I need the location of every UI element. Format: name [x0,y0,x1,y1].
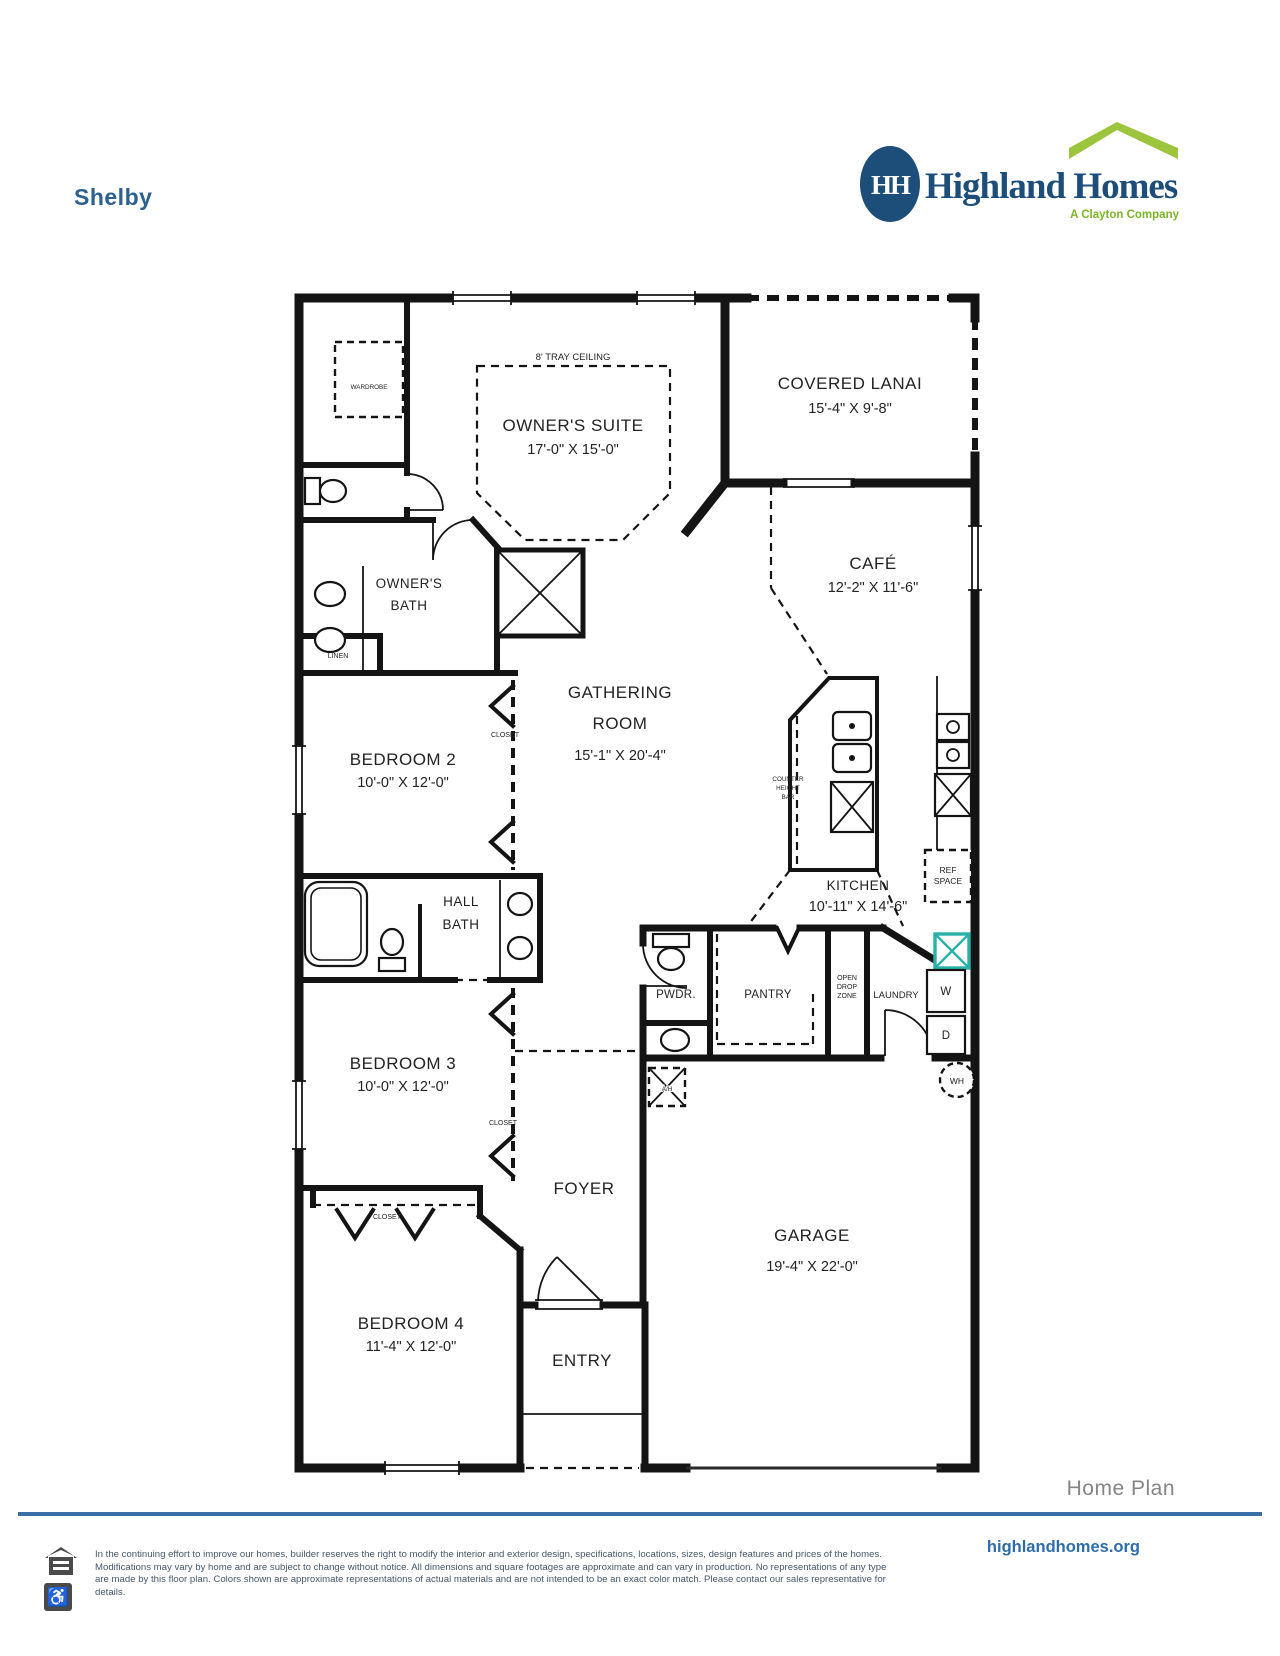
garage-label: GARAGE [774,1226,850,1245]
wardrobe-outline [335,342,403,417]
window [968,526,982,590]
brand-tagline: A Clayton Company [1070,209,1179,221]
foyer-label: FOYER [553,1179,614,1198]
bedroom4-label: BEDROOM 4 [358,1314,465,1333]
window [453,291,511,305]
air-handler-label: A/H [662,1086,673,1093]
drop-zone-label: OPEN [837,975,857,982]
floor-plan: 8' TRAY CEILING OWNER'S SUITE 17'-0" X 1… [285,288,995,1483]
bathtub [305,882,367,966]
bedroom2-label: BEDROOM 2 [350,750,457,769]
brand-roof-icon [1069,122,1178,159]
brand-name: Highland Homes [925,166,1178,207]
owners-bath-label: OWNER'S [376,576,443,591]
brand-monogram: HH [860,146,920,222]
disclaimer-text: In the continuing effort to improve our … [95,1549,913,1599]
entry-label: ENTRY [552,1351,612,1370]
page-title: Shelby [74,184,152,211]
counter-bar-label: COUNTER [772,776,804,783]
kitchen-dims: 10'-11" X 14'-6" [809,899,908,915]
footer-rule [18,1512,1262,1516]
hall-bath-label: HALL [443,894,479,909]
linen-label: LINEN [328,653,349,660]
footer-heading: Home Plan [1067,1477,1175,1501]
closet-label-bed3: CLOSET [489,1120,518,1127]
gathering-room-label-2: ROOM [593,714,648,733]
toilet [379,929,405,971]
window [637,291,695,305]
sink [661,1029,689,1051]
website-link[interactable]: highlandhomes.org [987,1538,1140,1557]
covered-lanai-dims: 15'-4" X 9'-8" [808,401,892,417]
disclaimer-line: details. [95,1587,913,1600]
sink [508,937,532,959]
disclaimer-line: Modifications may vary by home and are s… [95,1562,913,1575]
kitchen-island [790,678,877,870]
washer-label: W [940,986,951,998]
accessibility-icon: ♿ [44,1583,72,1611]
dishwasher [831,782,873,832]
equal-housing-icon [44,1546,78,1577]
laundry-tub-highlight [935,934,969,968]
window [292,746,306,814]
closet-label-bed4: CLOSET [373,1214,402,1221]
disclaimer-line: In the continuing effort to improve our … [95,1549,913,1562]
document-page: Shelby HH Highland Homes A Clayton Compa… [0,0,1280,1656]
sink [508,893,532,915]
bedroom3-dims: 10'-0" X 12'-0" [357,1079,449,1095]
bedroom4-dims: 11'-4" X 12'-0" [366,1339,457,1355]
disclaimer-line: are made by this floor plan. Colors show… [95,1574,913,1587]
pantry-label: PANTRY [744,989,791,1001]
bedroom3-label: BEDROOM 3 [350,1054,457,1073]
gathering-room-dims: 15'-1" X 20'-4" [574,748,666,764]
toilet [653,934,689,970]
counter-bar-label-2: HEIGHT [776,785,800,792]
gathering-room-label: GATHERING [568,683,672,702]
powder-label: PWDR. [656,989,696,1001]
wardrobe-label: WARDROBE [351,384,388,391]
owners-bath-label-2: BATH [390,598,427,613]
bedroom2-dims: 10'-0" X 12'-0" [357,775,449,791]
dryer-label: D [942,1030,951,1042]
kitchen-label: KITCHEN [827,878,890,893]
tray-ceiling-label: 8' TRAY CEILING [536,352,611,363]
drop-zone-label-3: ZONE [837,993,857,1000]
owners-suite-dims: 17'-0" X 15'-0" [527,442,619,458]
toilet [305,478,346,504]
utility-walls [515,928,975,1305]
ref-space-label-2: SPACE [934,876,963,886]
counter-bar-label-3: BAR [782,794,795,801]
closet-label-bed2: CLOSET [491,732,520,739]
window [385,1461,459,1475]
sink [315,628,345,652]
laundry-label: LAUNDRY [873,990,919,1001]
brand-logo: HH Highland Homes A Clayton Company [845,118,1185,233]
owners-suite-label: OWNER'S SUITE [502,416,643,435]
window [292,1081,306,1149]
range-counter [935,676,971,860]
footer-icons: ♿ [44,1546,80,1611]
hall-bath-label-2: BATH [442,917,479,932]
ref-space-label: REF [940,865,957,875]
sink [315,582,345,606]
cafe-label: CAFÉ [849,554,896,573]
shower [497,550,583,636]
water-heater-label: WH [950,1076,964,1086]
drop-zone-label-2: DROP [837,984,858,991]
garage-dims: 19'-4" X 22'-0" [766,1259,858,1275]
cafe-dims: 12'-2" X 11'-6" [828,580,919,596]
covered-lanai-label: COVERED LANAI [778,374,922,393]
brand-monogram-text: HH [871,170,911,200]
